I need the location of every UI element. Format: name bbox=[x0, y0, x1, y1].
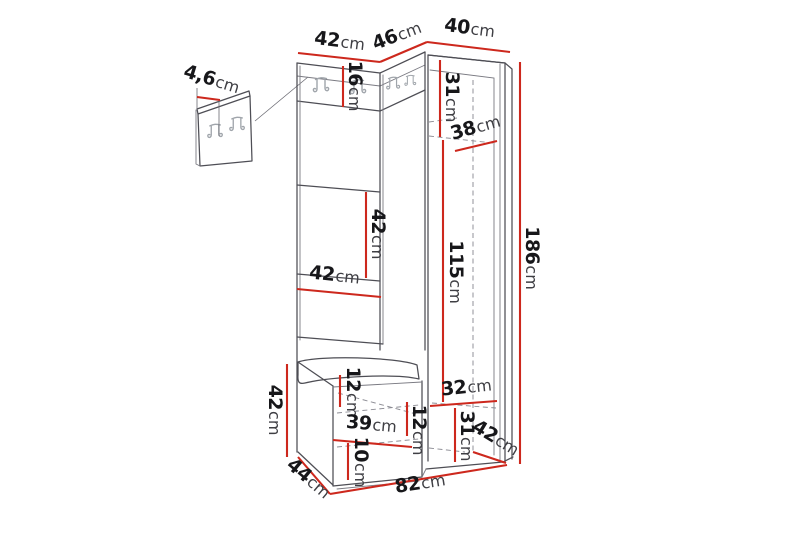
dim-label: 12cm bbox=[342, 367, 364, 418]
dim-unit: cm bbox=[340, 32, 367, 54]
dim-unit: cm bbox=[351, 463, 370, 487]
dimension-line bbox=[430, 401, 497, 406]
dim-unit: cm bbox=[446, 279, 465, 303]
dim-value: 12 bbox=[342, 367, 364, 392]
wardrobe-top-and-hook-rail bbox=[297, 52, 505, 111]
dim-value: 42 bbox=[308, 261, 336, 286]
dim-unit: cm bbox=[409, 431, 428, 455]
dimension-line bbox=[427, 42, 510, 52]
dim-hook-rail-height: 16cm bbox=[343, 61, 366, 112]
wall-panel-detail bbox=[196, 77, 308, 166]
dim-unit: cm bbox=[457, 437, 476, 461]
dim-unit: cm bbox=[442, 98, 461, 122]
dim-bench-right-inner-height: 12cm bbox=[407, 402, 430, 455]
hook-icon bbox=[387, 77, 400, 89]
furniture-dimension-diagram: 4,6cm 42cm 46cm 40cm 16cm 31cm 38cm 42cm… bbox=[0, 0, 800, 533]
dim-label: 40cm bbox=[443, 14, 496, 42]
dim-value: 186 bbox=[521, 226, 543, 264]
dim-label: 115cm bbox=[445, 240, 467, 304]
dim-unit: cm bbox=[466, 375, 492, 396]
dim-unit: cm bbox=[522, 265, 541, 289]
dimension-line bbox=[297, 289, 381, 297]
dim-value: 32 bbox=[440, 376, 468, 401]
dim-value: 12 bbox=[408, 405, 430, 430]
dim-unit: cm bbox=[470, 19, 497, 41]
dim-bench-top-inner-height: 12cm bbox=[340, 367, 364, 418]
cabinet-side-outline bbox=[505, 63, 512, 459]
dim-top-left-width: 42cm bbox=[298, 27, 380, 62]
dim-bench-depth: 44cm bbox=[282, 454, 335, 504]
dim-middle-inner-height: 42cm bbox=[366, 192, 389, 278]
dim-label: 12cm bbox=[408, 405, 430, 456]
dim-unit: cm bbox=[265, 411, 284, 435]
dim-label: 39cm bbox=[345, 411, 398, 437]
dim-unit: cm bbox=[395, 18, 425, 44]
dim-value: 115 bbox=[445, 240, 467, 278]
hook-icon bbox=[405, 75, 416, 85]
dim-label: 4,6cm bbox=[181, 60, 242, 98]
dim-right-bottom-inner-width: 32cm bbox=[430, 373, 497, 406]
bottom-board-line bbox=[297, 337, 383, 344]
dim-value: 42 bbox=[367, 209, 389, 234]
dim-value: 40 bbox=[443, 14, 471, 39]
dimension-line bbox=[473, 452, 506, 463]
dim-label: 46cm bbox=[369, 16, 424, 55]
dimension-line bbox=[197, 97, 220, 100]
dim-unit: cm bbox=[372, 415, 398, 436]
dim-label: 32cm bbox=[440, 373, 493, 400]
dim-total-height: 186cm bbox=[520, 62, 543, 464]
dim-label: 16cm bbox=[344, 61, 366, 112]
dim-label: 10cm bbox=[350, 437, 372, 488]
dim-label: 42cm bbox=[308, 261, 361, 288]
dim-value: 42 bbox=[264, 385, 286, 410]
dim-label: 44cm bbox=[282, 454, 335, 504]
dim-value: 42 bbox=[313, 27, 341, 52]
dimension-line bbox=[298, 53, 380, 62]
diagram-canvas: 4,6cm 42cm 46cm 40cm 16cm 31cm 38cm 42cm… bbox=[0, 0, 800, 533]
dim-value: 4,6 bbox=[181, 60, 218, 91]
dim-right-inner-height: 115cm bbox=[443, 140, 467, 402]
dim-value: 10 bbox=[350, 437, 372, 463]
dim-unit: cm bbox=[420, 470, 447, 493]
dim-unit: cm bbox=[335, 266, 361, 287]
dim-unit: cm bbox=[368, 235, 387, 259]
dim-bench-bottom-inner-height: 10cm bbox=[348, 437, 372, 488]
shelf-line-upper bbox=[297, 185, 380, 192]
dim-label: 42cm bbox=[264, 385, 286, 436]
dim-unit: cm bbox=[474, 112, 503, 137]
dim-label: 42cm bbox=[367, 209, 389, 260]
dim-unit: cm bbox=[213, 72, 242, 97]
dim-label: 186cm bbox=[521, 226, 543, 290]
dim-label: 42cm bbox=[313, 27, 366, 55]
dim-value: 82 bbox=[393, 472, 422, 498]
dim-value: 31 bbox=[441, 72, 463, 97]
top-edges bbox=[297, 52, 505, 73]
dim-label: 31cm bbox=[441, 72, 463, 123]
dim-unit: cm bbox=[345, 87, 364, 111]
dim-top-right-width: 40cm bbox=[427, 14, 510, 52]
dim-value: 16 bbox=[344, 61, 366, 87]
dim-value: 39 bbox=[345, 411, 372, 435]
dim-middle-inner-width: 42cm bbox=[297, 261, 381, 297]
dim-bench-height: 42cm bbox=[264, 364, 287, 457]
dim-label: 82cm bbox=[393, 468, 447, 498]
